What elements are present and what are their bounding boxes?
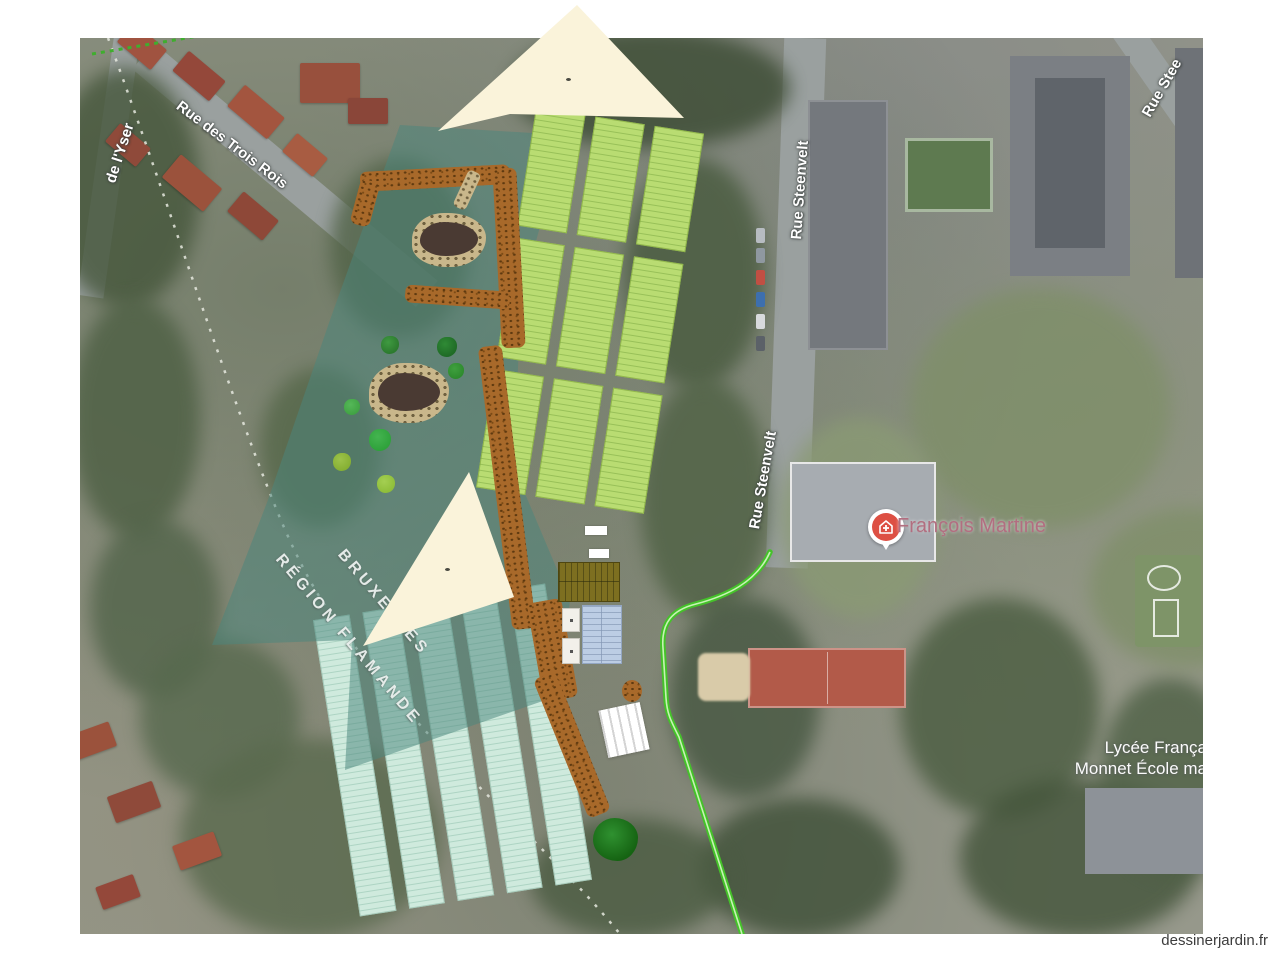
wedges-layer [80,38,1203,934]
watermark: dessinerjardin.fr [1161,932,1268,949]
bird-mark [445,568,450,571]
view-wedge-south[interactable] [360,468,520,650]
garden-design-export: de l'Yser Rue des Trois Rois Rue Steenve… [0,0,1280,960]
view-wedge-north[interactable] [435,3,690,135]
bird-mark [566,78,571,81]
map-canvas[interactable]: de l'Yser Rue des Trois Rois Rue Steenve… [80,38,1203,934]
